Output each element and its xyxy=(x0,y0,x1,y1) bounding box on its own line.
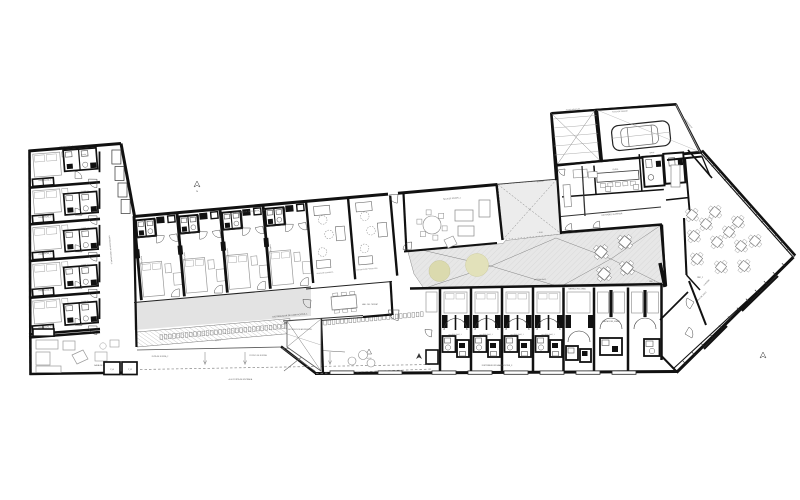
svg-text:DISTRIBUIDOR_1: DISTRIBUIDOR_1 xyxy=(479,334,492,336)
svg-text:P_W: P_W xyxy=(128,369,132,371)
svg-text:HALL DEL TERRAT: HALL DEL TERRAT xyxy=(362,303,379,306)
svg-text:PATI_2: PATI_2 xyxy=(697,276,703,279)
svg-text:DISTRIBUIDOR_1: DISTRIBUIDOR_1 xyxy=(541,334,554,336)
svg-text:BANY_5: BANY_5 xyxy=(81,300,88,304)
svg-text:HABITACIONS_GRAN: HABITACIONS_GRAN xyxy=(568,288,586,291)
svg-text:DISTRIBUIDOR_1: DISTRIBUIDOR_1 xyxy=(448,334,461,336)
svg-text:DISTRIBUIDOR: DISTRIBUIDOR xyxy=(534,279,547,281)
svg-text:RUTA DE SORRA_2: RUTA DE SORRA_2 xyxy=(152,355,169,358)
svg-text:PORXO DE SORRA: PORXO DE SORRA xyxy=(249,354,267,357)
svg-text:DISTRIBUIDOR_1: DISTRIBUIDOR_1 xyxy=(510,334,523,336)
svg-text:+0.00 PORTA DE ENTRADA: +0.00 PORTA DE ENTRADA xyxy=(228,378,253,381)
svg-text:BANY_4: BANY_4 xyxy=(81,263,88,267)
svg-text:ACCESSOS DE ASCENSORS: ACCESSOS DE ASCENSORS xyxy=(288,328,312,331)
svg-text:BANY_3: BANY_3 xyxy=(81,226,88,230)
svg-text:+ 0.00: + 0.00 xyxy=(537,232,542,234)
svg-text:BANY_1: BANY_1 xyxy=(81,153,88,157)
svg-text:BANY_2: BANY_2 xyxy=(81,190,88,194)
svg-text:PATI_1: PATI_1 xyxy=(649,280,655,283)
svg-text:DISTRIBUIDOR HABITACIONS_3: DISTRIBUIDOR HABITACIONS_3 xyxy=(482,364,513,367)
svg-text:CUINA: CUINA xyxy=(612,168,619,171)
